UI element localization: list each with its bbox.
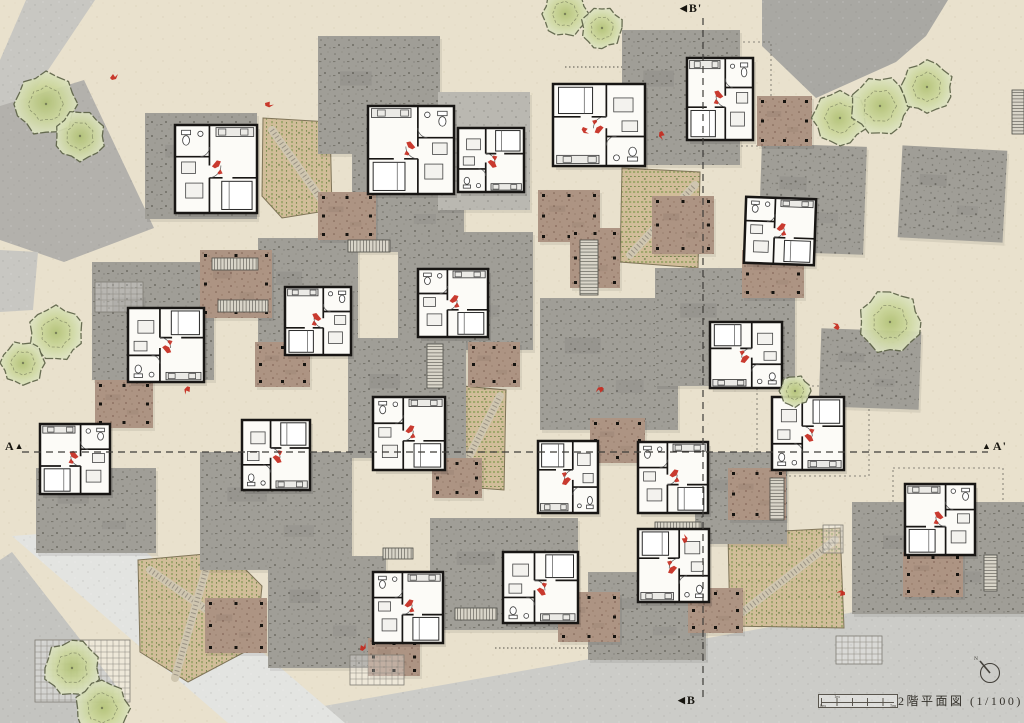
unit-plan <box>638 529 712 606</box>
bed <box>909 529 935 552</box>
toilet <box>696 585 702 593</box>
unit-plan <box>373 397 448 474</box>
toilet <box>769 373 775 380</box>
sink <box>657 447 661 451</box>
unit-plan <box>373 572 446 647</box>
stair <box>984 555 997 591</box>
sink <box>524 614 529 619</box>
bed <box>458 313 484 335</box>
sink <box>86 429 90 433</box>
unit-plan <box>128 308 207 386</box>
unit-plan <box>687 58 756 144</box>
toilet-tank <box>696 594 704 598</box>
drawing-title: 2階平面図 (1/100) <box>898 692 1024 709</box>
toilet-tank <box>463 185 470 188</box>
toilet <box>425 277 431 284</box>
sofa <box>182 162 196 173</box>
unit-plan <box>242 420 313 494</box>
bed <box>281 423 306 445</box>
sink <box>730 64 734 68</box>
unit-plan <box>503 552 581 627</box>
unit-plan <box>638 442 711 517</box>
sink <box>614 155 620 161</box>
unit-plan <box>285 287 354 359</box>
bed <box>678 487 704 510</box>
table <box>758 333 773 344</box>
toilet <box>510 607 516 615</box>
scale-label-5m: 5m <box>890 703 896 708</box>
toilet-tank <box>509 615 517 619</box>
sofa <box>433 143 448 154</box>
unit-plan <box>175 125 260 217</box>
sofa <box>764 352 776 361</box>
table <box>382 619 397 631</box>
sofa <box>424 298 436 307</box>
sink <box>328 292 332 296</box>
site-plan-drawing <box>0 0 1024 723</box>
toilet <box>380 406 386 414</box>
toilet-tank <box>134 374 142 378</box>
toilet <box>629 147 637 156</box>
trellis <box>350 655 404 685</box>
stair <box>348 240 390 252</box>
bed <box>289 331 313 353</box>
unit-plan <box>368 106 457 198</box>
stair <box>383 548 413 559</box>
bed <box>44 469 70 491</box>
section-arrow-icon: ▲ <box>15 441 26 451</box>
unit-plan <box>458 128 527 196</box>
toilet <box>98 432 104 440</box>
section-label: B <box>687 693 696 707</box>
unit-plan <box>772 397 847 474</box>
sink <box>198 131 203 136</box>
sink <box>149 372 154 377</box>
table <box>951 531 966 543</box>
toilet <box>248 474 254 482</box>
sofa <box>778 430 790 439</box>
sofa <box>958 514 970 523</box>
table <box>467 139 481 150</box>
stair <box>218 300 268 312</box>
toilet-tank <box>628 157 638 161</box>
table <box>138 321 154 334</box>
sink <box>425 112 431 118</box>
stair <box>427 344 443 388</box>
toilet-tank <box>752 201 760 205</box>
trellis <box>823 525 843 553</box>
road-left-block <box>0 250 38 312</box>
table <box>425 164 443 179</box>
bed <box>813 400 840 423</box>
unit-plan <box>744 197 819 270</box>
terrace-plate <box>652 196 716 257</box>
roof-plate <box>898 145 1010 245</box>
toilet-tank <box>644 446 652 450</box>
bed <box>714 325 741 346</box>
table <box>578 453 591 465</box>
toilet-tank <box>247 482 254 486</box>
table <box>427 314 442 326</box>
sink <box>393 402 398 407</box>
terrace-plate <box>205 598 269 656</box>
scale-label-1m: 1m <box>834 694 840 699</box>
stair <box>1012 90 1024 134</box>
toilet <box>779 453 785 461</box>
toilet-tank <box>740 63 747 67</box>
sink <box>476 183 480 187</box>
sofa <box>134 341 147 351</box>
sink <box>577 504 581 508</box>
toilet-tank <box>962 488 970 492</box>
toilet <box>963 493 969 501</box>
sink <box>757 379 762 384</box>
sofa <box>247 452 259 461</box>
toilet <box>339 295 345 302</box>
bed <box>546 555 574 578</box>
unit-plan <box>418 269 491 341</box>
sofa <box>691 562 703 571</box>
toilet-tank <box>768 381 776 384</box>
table <box>251 432 265 444</box>
sink <box>792 460 797 465</box>
toilet <box>464 177 470 184</box>
section-marker-b: ◀B <box>678 693 696 707</box>
sink <box>765 202 770 207</box>
scale-label-0m: 0m <box>820 703 826 708</box>
sofa <box>379 428 391 437</box>
unit-plan <box>553 84 648 170</box>
bed <box>171 311 199 335</box>
sofa <box>335 316 346 325</box>
table <box>382 445 397 457</box>
north-arrow-icon: N <box>968 648 1008 688</box>
table <box>329 332 343 344</box>
sofa <box>644 472 656 481</box>
table <box>781 409 796 421</box>
toilet <box>380 581 386 589</box>
toilet <box>439 117 446 127</box>
sink <box>685 592 690 597</box>
sofa <box>93 453 105 462</box>
terrace-plate <box>318 192 378 243</box>
toilet-tank <box>778 462 786 466</box>
section-label: B' <box>689 1 702 15</box>
toilet <box>183 136 190 146</box>
unit-plan <box>710 322 785 392</box>
terrace-plate <box>757 96 814 149</box>
terrace-plate <box>903 552 965 600</box>
stair <box>455 608 497 620</box>
sofa <box>583 473 593 482</box>
toilet-tank <box>379 401 387 405</box>
north-label: N <box>974 656 978 662</box>
toilet-tank <box>338 291 345 294</box>
toilet <box>135 365 141 373</box>
toilet <box>741 68 747 77</box>
section-label: A <box>5 439 15 453</box>
table <box>731 112 745 126</box>
table <box>186 183 203 198</box>
unit-plan <box>40 424 113 498</box>
scale-bar: 0m 1m 5m <box>818 694 898 708</box>
stair <box>580 240 598 295</box>
toilet-tank <box>587 505 594 509</box>
sofa <box>737 92 748 103</box>
sink <box>392 577 396 581</box>
section-marker-a: A▲ <box>5 439 26 453</box>
table <box>647 489 662 501</box>
table <box>86 470 101 482</box>
sofa <box>463 157 474 165</box>
toilet <box>752 205 758 212</box>
toilet <box>587 496 592 504</box>
sofa <box>379 602 391 611</box>
sofa <box>509 584 522 593</box>
sink <box>437 274 441 278</box>
trellis <box>836 636 882 664</box>
toilet-tank <box>424 273 432 276</box>
bed <box>413 617 439 640</box>
section-marker-a-prime: ▲A' <box>982 439 1007 453</box>
bed <box>559 87 593 113</box>
bed <box>542 444 564 467</box>
unit-plan <box>905 484 978 559</box>
sofa <box>622 121 638 132</box>
toilet-tank <box>379 576 387 580</box>
table <box>685 541 700 553</box>
section-arrow-icon: ▲ <box>982 441 993 451</box>
bed <box>642 532 668 555</box>
table <box>513 564 529 576</box>
toilet-tank <box>438 111 447 115</box>
bed <box>784 240 811 262</box>
toilet-tank <box>97 428 105 432</box>
stair <box>212 258 258 270</box>
sink <box>261 481 265 485</box>
section-arrow-icon: ◀ <box>680 3 689 13</box>
terrace-plate <box>468 342 522 390</box>
sofa <box>751 225 763 234</box>
section-arrow-icon: ◀ <box>678 695 687 705</box>
table <box>614 98 633 112</box>
section-label: A' <box>993 439 1007 453</box>
bed <box>496 131 520 151</box>
site-plan-canvas: ◀B' ◀B A▲ ▲A' 0m 1m 5m 2階平面図 (1/100) N <box>0 0 1024 723</box>
sink <box>951 489 955 493</box>
bed <box>373 162 405 190</box>
toilet-tank <box>182 130 191 134</box>
bed <box>222 181 252 209</box>
stair <box>770 478 784 520</box>
section-marker-b-prime: ◀B' <box>680 1 702 15</box>
bed <box>414 444 441 467</box>
table <box>753 241 768 253</box>
